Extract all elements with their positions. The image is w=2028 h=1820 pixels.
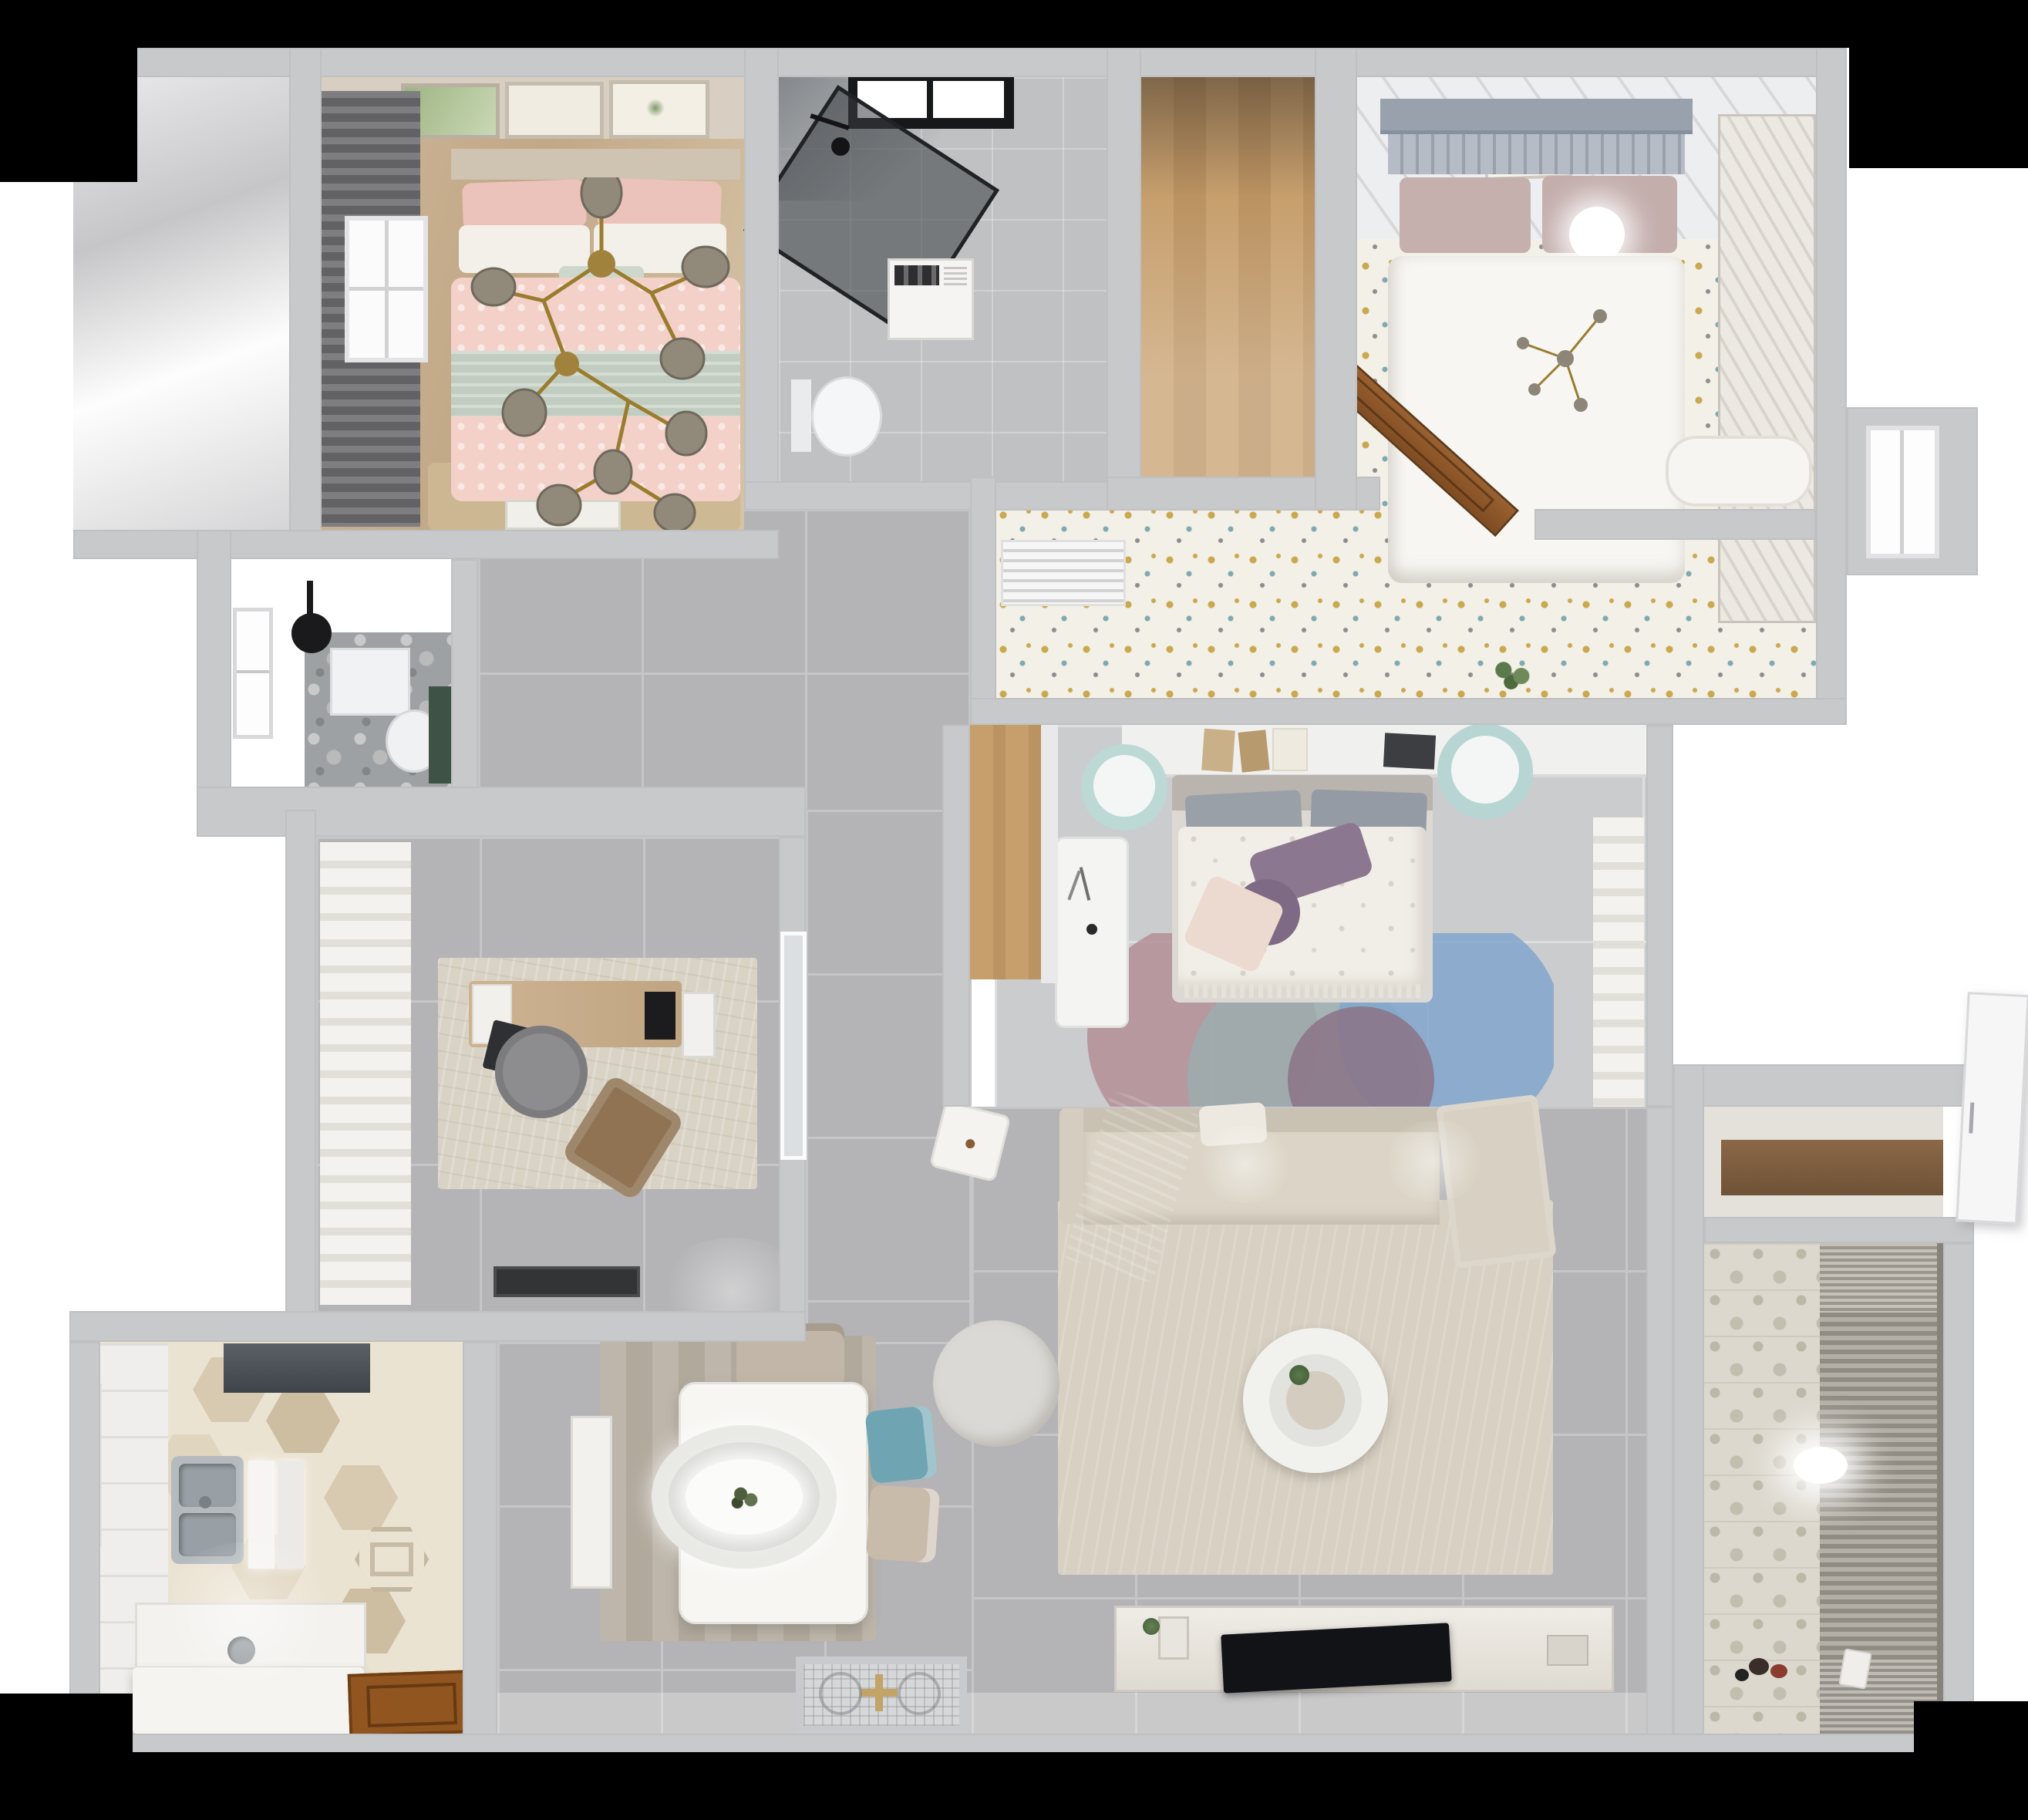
wall-hall-bedroom-divider [942, 725, 970, 1107]
toilet-bowl [811, 376, 882, 457]
flat-tv [1221, 1623, 1452, 1693]
botanical-art-frame [609, 80, 709, 139]
balcony [1704, 1243, 1943, 1734]
cutting-board-2 [278, 1461, 304, 1569]
wall-storage-bottom [1704, 1217, 1974, 1243]
bedroom3-desk [1055, 837, 1129, 1028]
bedroom3-curtains [1593, 817, 1644, 1107]
office [316, 837, 779, 1311]
wall-kitchen-dining-divider [463, 1342, 497, 1735]
bathroom-vanity [888, 258, 974, 340]
green-vanity [429, 686, 452, 784]
balcony-glass-edge [1937, 1243, 1943, 1734]
wall-midroom-right [1646, 725, 1673, 1107]
wall-midroom-top [970, 698, 1847, 725]
master-bedroom [322, 77, 744, 530]
balcony-ceiling-light [1794, 1447, 1848, 1484]
wall-living-right [1646, 1107, 1673, 1735]
shelf-book-3 [1272, 728, 1308, 771]
bed2-branch-decal [1508, 301, 1623, 416]
bathroom-left-window [233, 608, 273, 739]
office-glass-door-overlay [780, 932, 807, 1160]
entry-closet [1141, 77, 1315, 477]
console-decor-right [1547, 1635, 1588, 1666]
bed2-slat-headboard [1388, 134, 1685, 174]
hex-tile-2 [266, 1388, 340, 1453]
bathroom-top [779, 77, 1107, 481]
sink-faucet [199, 1496, 211, 1508]
wall-bedroom2-bottom-seg [1534, 509, 1816, 540]
shelf-book-1 [1201, 729, 1235, 773]
shower-head [831, 137, 850, 156]
wall-bath1-left [744, 48, 779, 511]
wall-storage-top [1673, 1064, 1974, 1107]
toilet-tank [791, 379, 811, 452]
cream-art-frame [505, 82, 604, 139]
stool-teal-left-top [1093, 755, 1155, 817]
mat-arc-left [819, 1672, 862, 1715]
entry-mat [796, 1657, 967, 1734]
bed2-canopy [1380, 99, 1693, 134]
kitchen-wood-door [348, 1670, 473, 1737]
wall-bedroom2-right [1816, 48, 1847, 725]
ac-louver-vent [1001, 540, 1126, 606]
floorplan-stage [0, 0, 2028, 1820]
wall-balcony-right [1943, 1243, 1974, 1735]
toy-3 [1735, 1669, 1749, 1681]
sofa-chaise [1436, 1094, 1557, 1269]
hex-tile-4 [324, 1465, 398, 1530]
wall-office-kitchen-band [69, 1311, 806, 1342]
black-shower-arm [307, 581, 313, 616]
master-bed-headboard [451, 149, 740, 180]
bedroom-right-bench [1666, 436, 1812, 507]
kitchen-island [133, 1667, 364, 1734]
wall-kitchen-left [69, 1342, 100, 1751]
office-doormat [494, 1266, 640, 1297]
bed2-ball-lamp [1569, 207, 1625, 262]
dining-area [497, 1311, 972, 1737]
bathroom-left [231, 559, 451, 787]
wall-storage-balcony-left [1673, 1064, 1704, 1735]
wall-master-left [289, 48, 322, 559]
dining-chair-teal [864, 1405, 938, 1484]
wall-closet-right [1315, 48, 1357, 511]
sink-bowl-bottom [179, 1513, 236, 1556]
frame-corner-tl [0, 0, 137, 182]
blinds-stack-top [1820, 1243, 1943, 1313]
wall-master-bottom [73, 530, 779, 559]
wall-top-outer [73, 48, 1847, 77]
annex-plant [1488, 654, 1539, 694]
coffee-table-plant [1289, 1365, 1309, 1385]
office-curtains [320, 842, 411, 1305]
wall-bottom-outer [69, 1734, 1974, 1754]
pendant-plant [727, 1482, 761, 1512]
master-window [345, 216, 428, 362]
niche-window [1866, 426, 1939, 558]
stool-teal-right-top [1451, 736, 1519, 804]
hex-motif-tile [355, 1527, 429, 1592]
mat-medallion-v [875, 1674, 883, 1711]
console-plant [1143, 1618, 1160, 1635]
bathroom-left-shelf [330, 648, 410, 716]
island-faucet [227, 1636, 255, 1664]
closet-shadow [1141, 77, 1315, 477]
wall-annex-left [970, 477, 996, 725]
bed2-pillow-left [1400, 177, 1531, 253]
frame-corner-bl [0, 1694, 133, 1820]
wall-office-left [285, 810, 316, 1342]
frame-corner-br [1914, 1701, 2028, 1820]
office-cabinet [682, 992, 716, 1058]
wall-tv-art [645, 992, 675, 1040]
frame-band-top [0, 0, 2028, 48]
dining-console [571, 1416, 612, 1589]
storage-niche [1704, 1107, 1943, 1217]
range-hood [224, 1343, 370, 1393]
toy-1 [1749, 1658, 1769, 1675]
right-wall-door [1956, 992, 2028, 1225]
office-chair [495, 1026, 588, 1118]
living-room [972, 1107, 1673, 1737]
frame-band-bottom [0, 1752, 2028, 1820]
mat-arc-right [898, 1672, 941, 1715]
nook-divider [1041, 721, 1058, 983]
wall-closet-left [1107, 48, 1141, 511]
black-shower-head [291, 613, 332, 653]
branch-chandelier [451, 177, 744, 540]
shelf-laptop [1383, 733, 1436, 769]
louvered-wardrobe [1718, 114, 1816, 623]
cutting-board-1 [248, 1461, 275, 1569]
console-frame-decor [1158, 1616, 1189, 1660]
toy-2 [1770, 1664, 1787, 1678]
wall-bath1-bottom [744, 481, 1141, 511]
bed3-fringe [1184, 984, 1420, 998]
wall-bath2-right [451, 559, 478, 817]
frame-corner-tr [1849, 0, 2028, 168]
shelf-book-2 [1238, 730, 1269, 772]
bedroom-middle [995, 725, 1646, 1107]
wood-nook [970, 721, 1041, 979]
wall-bath2-left [197, 530, 231, 817]
storage-wood-counter [1721, 1140, 1943, 1195]
dining-chair-beige [866, 1485, 940, 1563]
sofa-pillow-white [1198, 1102, 1267, 1147]
kitchen [100, 1342, 463, 1735]
